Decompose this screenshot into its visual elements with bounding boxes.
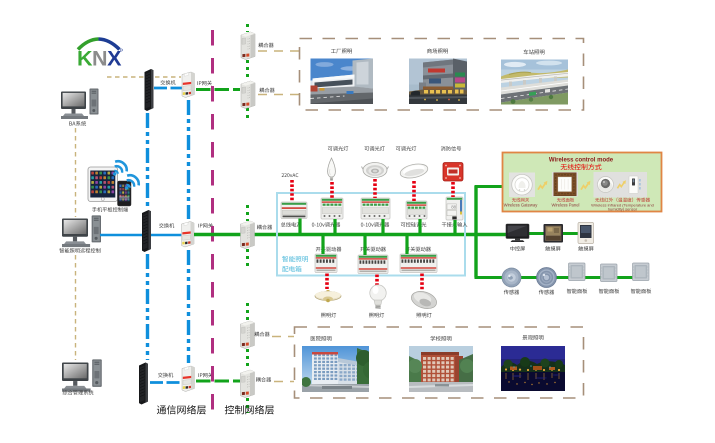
- svg-text:Wireless Panel: Wireless Panel: [552, 203, 580, 208]
- svg-text:humidity) sensor: humidity) sensor: [608, 207, 638, 212]
- svg-text:88: 88: [451, 205, 456, 210]
- svg-text:Wireless Gateway: Wireless Gateway: [504, 203, 539, 208]
- svg-text:Wireless control mode: Wireless control mode: [549, 158, 614, 164]
- svg-text:KNX: KNX: [77, 47, 122, 71]
